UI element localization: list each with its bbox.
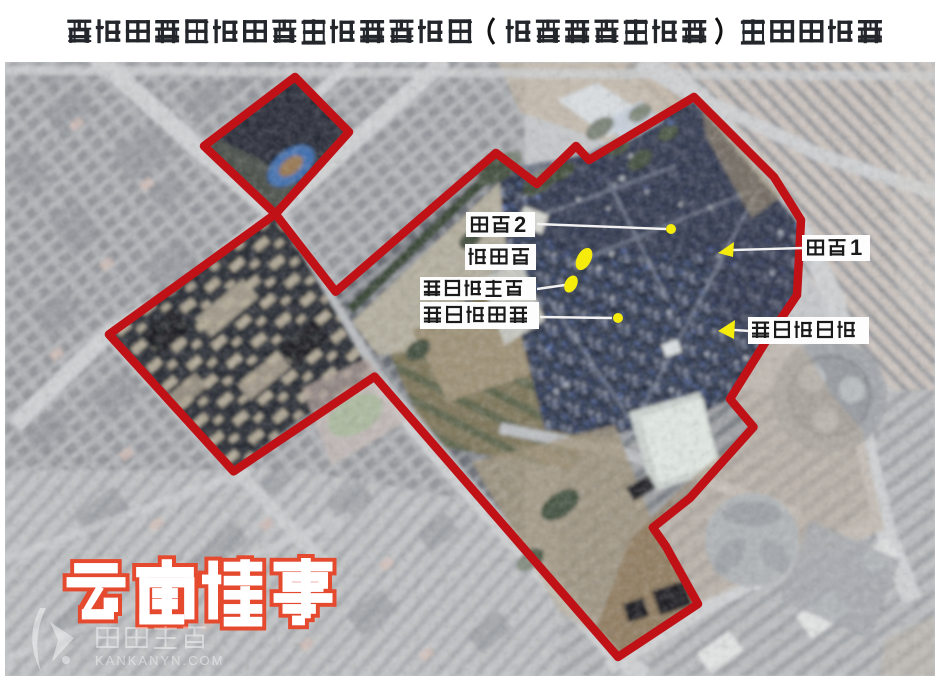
svg-text:2: 2 [514,212,526,237]
svg-text:1: 1 [850,235,862,260]
svg-text:KANKANYN.COM: KANKANYN.COM [95,653,224,668]
